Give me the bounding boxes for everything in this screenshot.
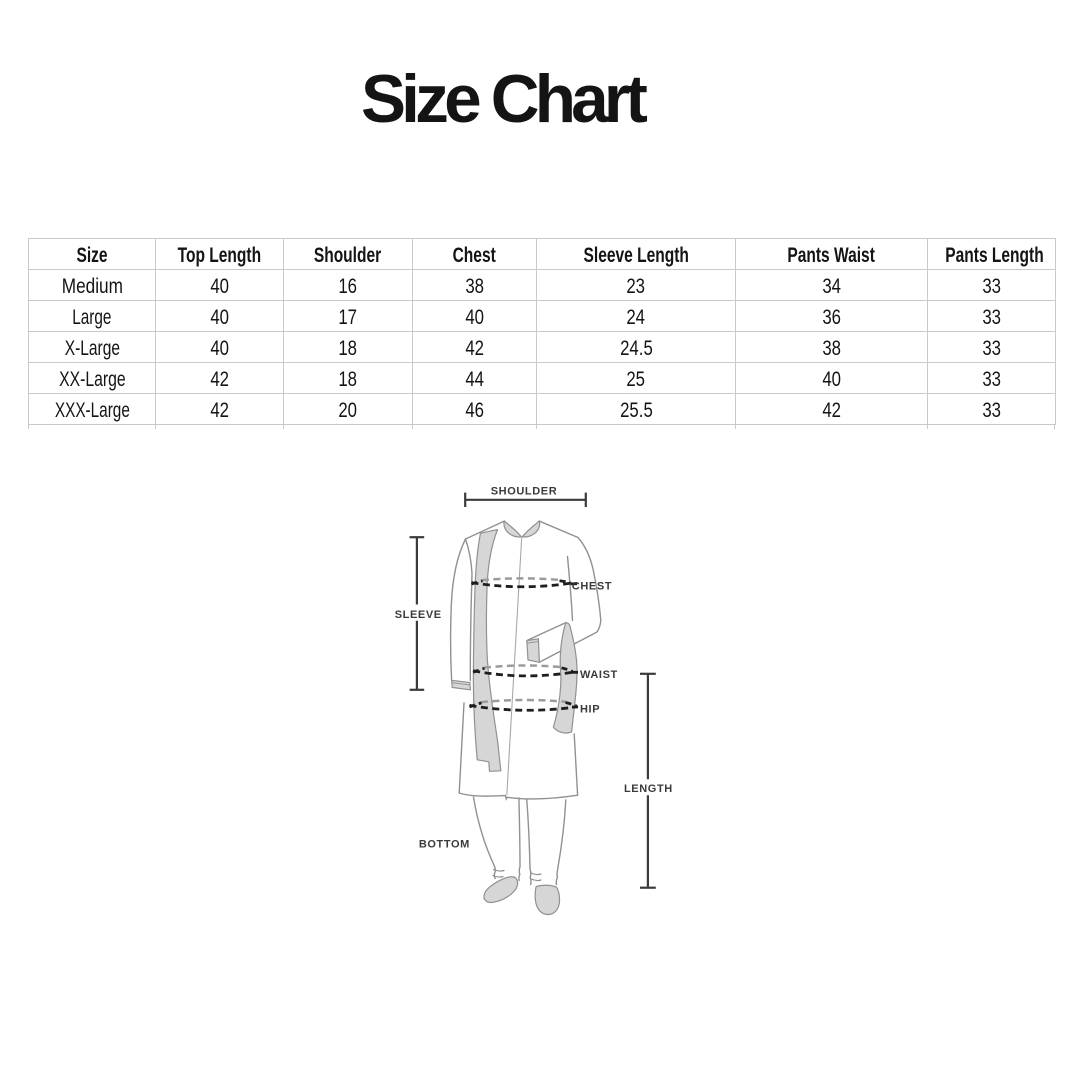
svg-text:SLEEVE: SLEEVE (395, 609, 442, 621)
svg-text:WAIST: WAIST (580, 669, 618, 681)
svg-text:SHOULDER: SHOULDER (491, 485, 558, 497)
svg-text:BOTTOM: BOTTOM (419, 839, 470, 851)
svg-text:LENGTH: LENGTH (624, 783, 673, 795)
svg-text:CHEST: CHEST (572, 581, 612, 593)
svg-text:HIP: HIP (580, 703, 600, 715)
